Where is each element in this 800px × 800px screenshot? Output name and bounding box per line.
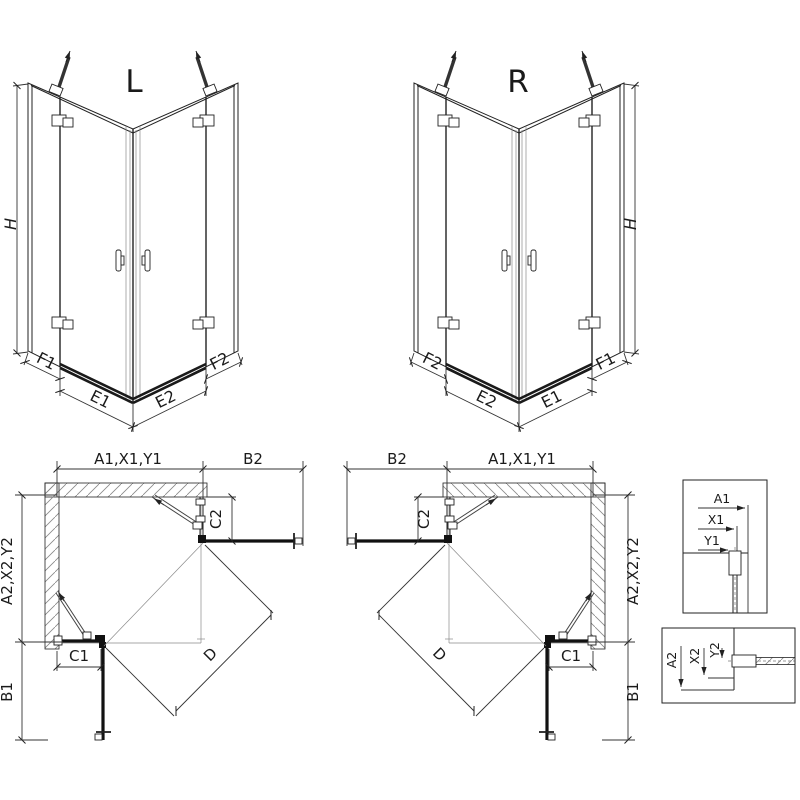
plan-R-dim-B2: B2 (387, 450, 407, 468)
iso-L-dim-H: H (1, 218, 20, 230)
plan-R-dim-A2X2Y2: A2,X2,Y2 (624, 537, 642, 605)
plan-L-dim-A1X1Y1: A1,X1,Y1 (94, 450, 162, 468)
plan-R-dim-C1: C1 (561, 647, 581, 665)
page-background (0, 0, 800, 800)
plan-L-dim-B1: B1 (0, 682, 16, 702)
detail-dim-A1: A1 (714, 491, 731, 506)
plan-L-dim-A2X2Y2: A2,X2,Y2 (0, 537, 16, 605)
detail-dim-X1: X1 (708, 512, 725, 527)
plan-L-dim-C1: C1 (69, 647, 89, 665)
detail-dim-X2: X2 (687, 648, 702, 665)
plan-R-dim-C2: C2 (415, 509, 433, 529)
plan-L-dim-C2: C2 (207, 509, 225, 529)
glass-edge-strip (756, 658, 795, 665)
detail-dim-Y1: Y1 (703, 533, 720, 548)
iso-R-dim-H: H (621, 218, 640, 230)
detail-dim-Y2: Y2 (707, 642, 722, 659)
plan-R-dim-B1: B1 (624, 682, 642, 702)
wall-profile (732, 655, 756, 667)
shower-technical-diagram: L H F1 E1 E2 F2 R H F2 E2 E1 F1 A1,X1,Y1… (0, 0, 800, 800)
iso-R-label: R (507, 64, 529, 100)
wall-profile (729, 551, 741, 575)
plan-L-dim-B2: B2 (243, 450, 263, 468)
plan-R-dim-A1X1Y1: A1,X1,Y1 (488, 450, 556, 468)
detail-dim-A2: A2 (664, 652, 679, 669)
iso-L-label: L (125, 64, 143, 100)
